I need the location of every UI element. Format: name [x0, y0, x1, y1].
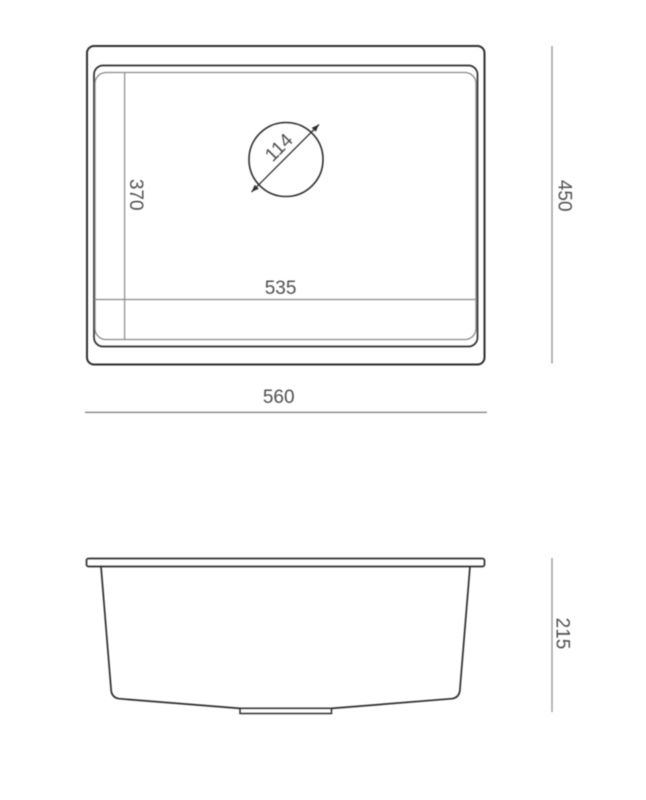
- svg-text:114: 114: [261, 130, 298, 167]
- svg-text:535: 535: [265, 278, 297, 299]
- svg-text:370: 370: [125, 179, 146, 211]
- svg-text:560: 560: [263, 387, 295, 408]
- svg-text:215: 215: [552, 618, 573, 650]
- svg-text:450: 450: [554, 180, 575, 212]
